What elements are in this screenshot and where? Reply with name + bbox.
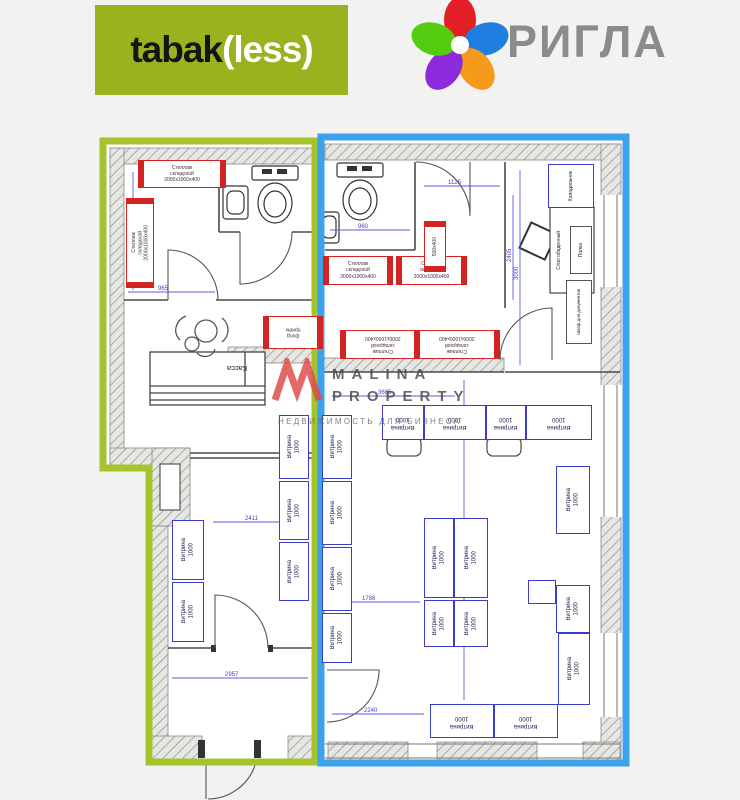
- vitrina-box: Витрина1000: [322, 613, 352, 663]
- dimension-label: 960: [358, 224, 369, 230]
- shelf-box: Стеллажскладской2000х1000х400: [126, 198, 154, 288]
- vitrina-box: Витрина1000: [172, 520, 204, 580]
- fridge-box: Холодильник: [548, 164, 594, 208]
- vitrina-box: [528, 580, 556, 604]
- kassa-label: Касса: [213, 360, 261, 378]
- vitrina-box: Витрина1000: [424, 600, 454, 647]
- vitrina-box: Витрина1000: [424, 518, 454, 598]
- dimension-label: 965: [158, 286, 169, 292]
- dimension-label: 2240: [364, 708, 378, 714]
- dimension-label: 2405: [507, 248, 513, 262]
- shelf-small-box: Полка: [570, 226, 592, 274]
- dimension-label: 1786: [362, 596, 376, 602]
- dimension-label: 2957: [225, 672, 239, 678]
- sink-icon: [223, 186, 248, 219]
- rigla-flower-icon: [408, 0, 513, 95]
- vitrina-box: Витрина1000: [172, 582, 204, 642]
- dimension-label: 3000: [514, 266, 520, 280]
- shelf-box: Стеллажскладской2000х1000х400: [138, 160, 226, 188]
- doc-cabinet-box: Шкаф для документов: [566, 280, 592, 344]
- vitrina-box: Витрина1000: [486, 405, 526, 440]
- fund-box: фондприем: [263, 316, 323, 349]
- vitrina-box: Витрина1000: [322, 547, 352, 611]
- entrance-door-arc: [208, 762, 256, 799]
- dimension-label: 1125: [448, 180, 462, 186]
- malina-logo-icon: [270, 358, 324, 404]
- vitrina-box: Витрина1000: [494, 704, 558, 738]
- tabakless-text-white: (less): [222, 29, 313, 71]
- small-table-box: 500х400: [424, 221, 446, 272]
- dining-table-label: Стол обеденный: [552, 210, 566, 290]
- vitrina-box: Витрина1000: [430, 704, 494, 738]
- wall-niche: [160, 464, 180, 510]
- tabakless-text-black: tabak: [130, 29, 222, 71]
- vitrina-box: Витрина1000: [526, 405, 592, 440]
- rigla-wordmark: РИГЛА: [507, 16, 668, 68]
- vitrina-box: Витрина1000: [454, 518, 488, 598]
- shelf-box: Стеллажскладской2000х1000х400: [414, 330, 500, 359]
- vitrina-box: Витрина1000: [454, 600, 488, 647]
- watermark: MALINA PROPERTY: [270, 358, 495, 408]
- vitrina-box: Витрина1000: [558, 633, 590, 705]
- vitrina-box: Витрина1000: [556, 585, 590, 633]
- vitrina-box: Витрина1000: [322, 481, 352, 545]
- shelf-box: Стеллажскладской2000х1000х400: [323, 256, 393, 285]
- watermark-title-1: MALINA: [332, 364, 471, 386]
- vitrina-box: Витрина1000: [279, 542, 309, 601]
- vitrina-box: Витрина1000: [279, 481, 309, 540]
- watermark-subtitle: НЕДВИЖИМОСТЬ ДЛЯ БИЗНЕСА: [278, 417, 461, 426]
- watermark-title-2: PROPERTY: [332, 386, 471, 408]
- dimension-label: 2411: [245, 516, 259, 522]
- tabakless-logo: tabak(less): [95, 5, 348, 95]
- vitrina-box: Витрина1000: [556, 466, 590, 534]
